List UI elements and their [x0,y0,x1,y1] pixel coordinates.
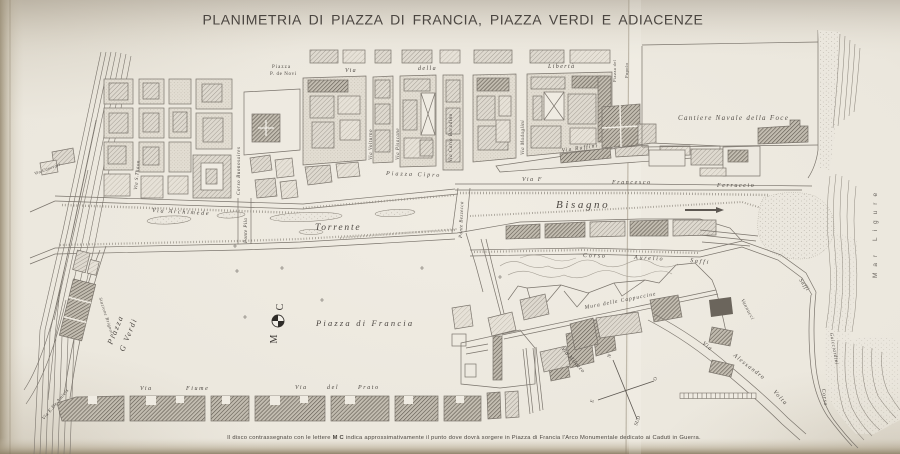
svg-text:Bisagno: Bisagno [556,199,610,211]
svg-text:Torrente: Torrente [315,223,361,233]
svg-text:Popolo: Popolo [624,62,629,78]
svg-text:Ponte Pila: Ponte Pila [244,218,249,244]
svg-text:Piazza di Francia: Piazza di Francia [315,318,414,328]
svg-text:Via: Via [295,385,308,391]
svg-text:Via Madaglini: Via Madaglini [521,120,526,155]
svg-text:P. de Novi: P. de Novi [270,72,297,77]
svg-text:Via Pisacane: Via Pisacane [396,128,401,160]
svg-text:Via: Via [345,68,357,74]
svg-text:Fiume: Fiume [185,386,209,392]
svg-text:C: C [275,303,286,310]
svg-text:Via: Via [140,386,153,392]
svg-text:della: della [418,66,437,72]
svg-text:M: M [269,334,280,343]
svg-text:Piazza del: Piazza del [612,59,617,82]
svg-text:Via F: Via F [522,177,543,183]
svg-text:Prato: Prato [357,385,380,391]
svg-text:Via Carlo Baradino: Via Carlo Baradino [449,113,454,162]
svg-text:Corso: Corso [583,253,607,260]
svg-text:Via Volturno: Via Volturno [369,129,374,160]
svg-text:Il disco contrassegnato con le: Il disco contrassegnato con le lettere M… [227,435,701,441]
svg-text:Libertà: Libertà [547,64,575,70]
svg-text:Piazza: Piazza [272,65,291,70]
svg-text:Corso Buonosaires: Corso Buonosaires [237,147,242,196]
svg-text:PLANIMETRIA DI PIAZZA DI FRANC: PLANIMETRIA DI PIAZZA DI FRANCIA, PIAZZA… [203,12,704,28]
svg-text:del: del [327,385,339,391]
svg-text:Ferruccio: Ferruccio [716,183,755,189]
svg-text:Mar Ligure: Mar Ligure [872,187,879,278]
svg-text:Cantiere Navale della Foce: Cantiere Navale della Foce [678,114,789,122]
svg-text:Francesco: Francesco [611,180,652,186]
